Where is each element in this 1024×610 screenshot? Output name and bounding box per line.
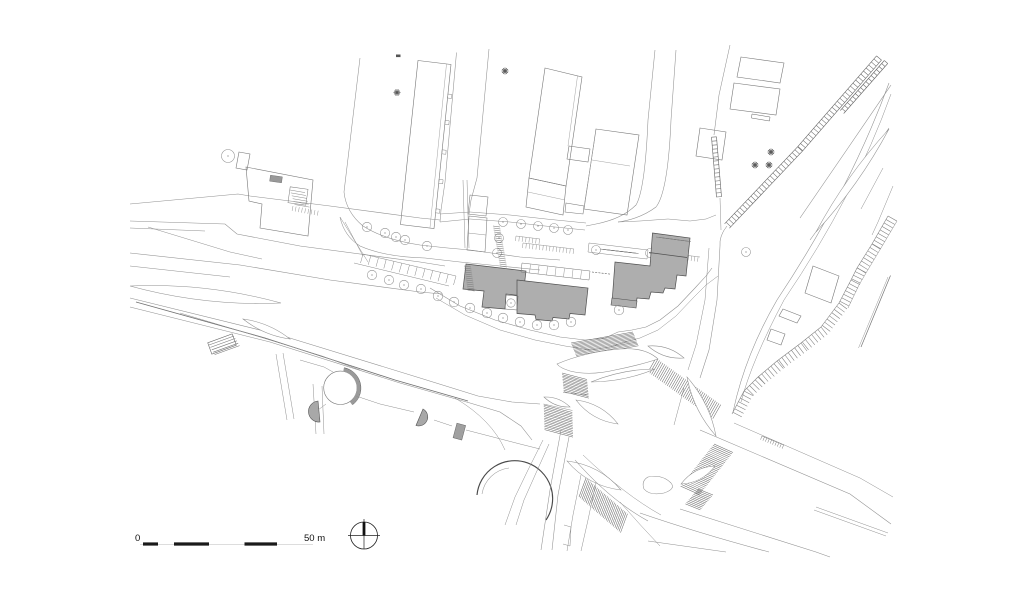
svg-text:0: 0: [135, 533, 140, 544]
svg-text:50 m: 50 m: [304, 533, 325, 544]
